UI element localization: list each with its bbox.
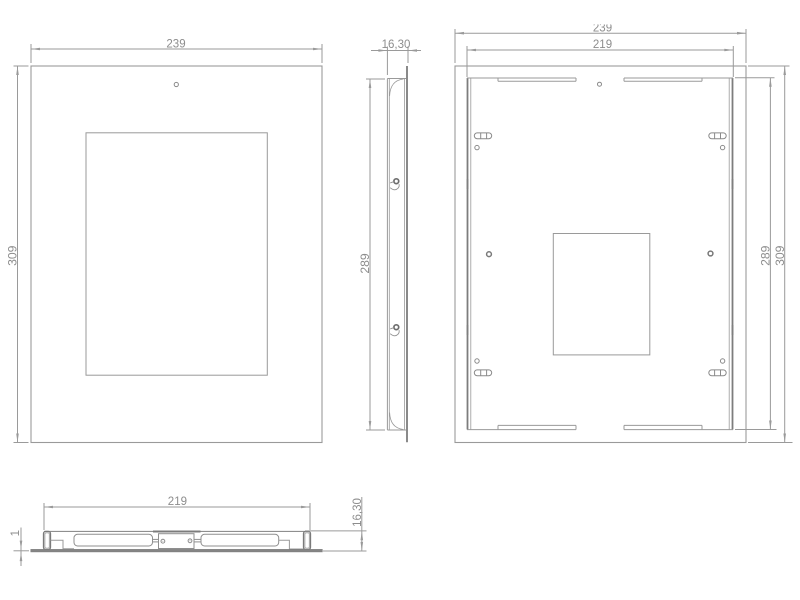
svg-text:1: 1 xyxy=(10,530,22,536)
svg-text:309: 309 xyxy=(773,245,787,266)
svg-text:16,30: 16,30 xyxy=(352,498,364,527)
svg-text:16,30: 16,30 xyxy=(382,39,411,51)
svg-text:289: 289 xyxy=(358,253,372,274)
svg-text:289: 289 xyxy=(758,245,772,266)
svg-text:309: 309 xyxy=(6,245,20,266)
svg-text:239: 239 xyxy=(593,22,612,34)
svg-text:239: 239 xyxy=(166,39,185,51)
svg-text:219: 219 xyxy=(593,39,612,51)
svg-text:219: 219 xyxy=(168,496,187,508)
